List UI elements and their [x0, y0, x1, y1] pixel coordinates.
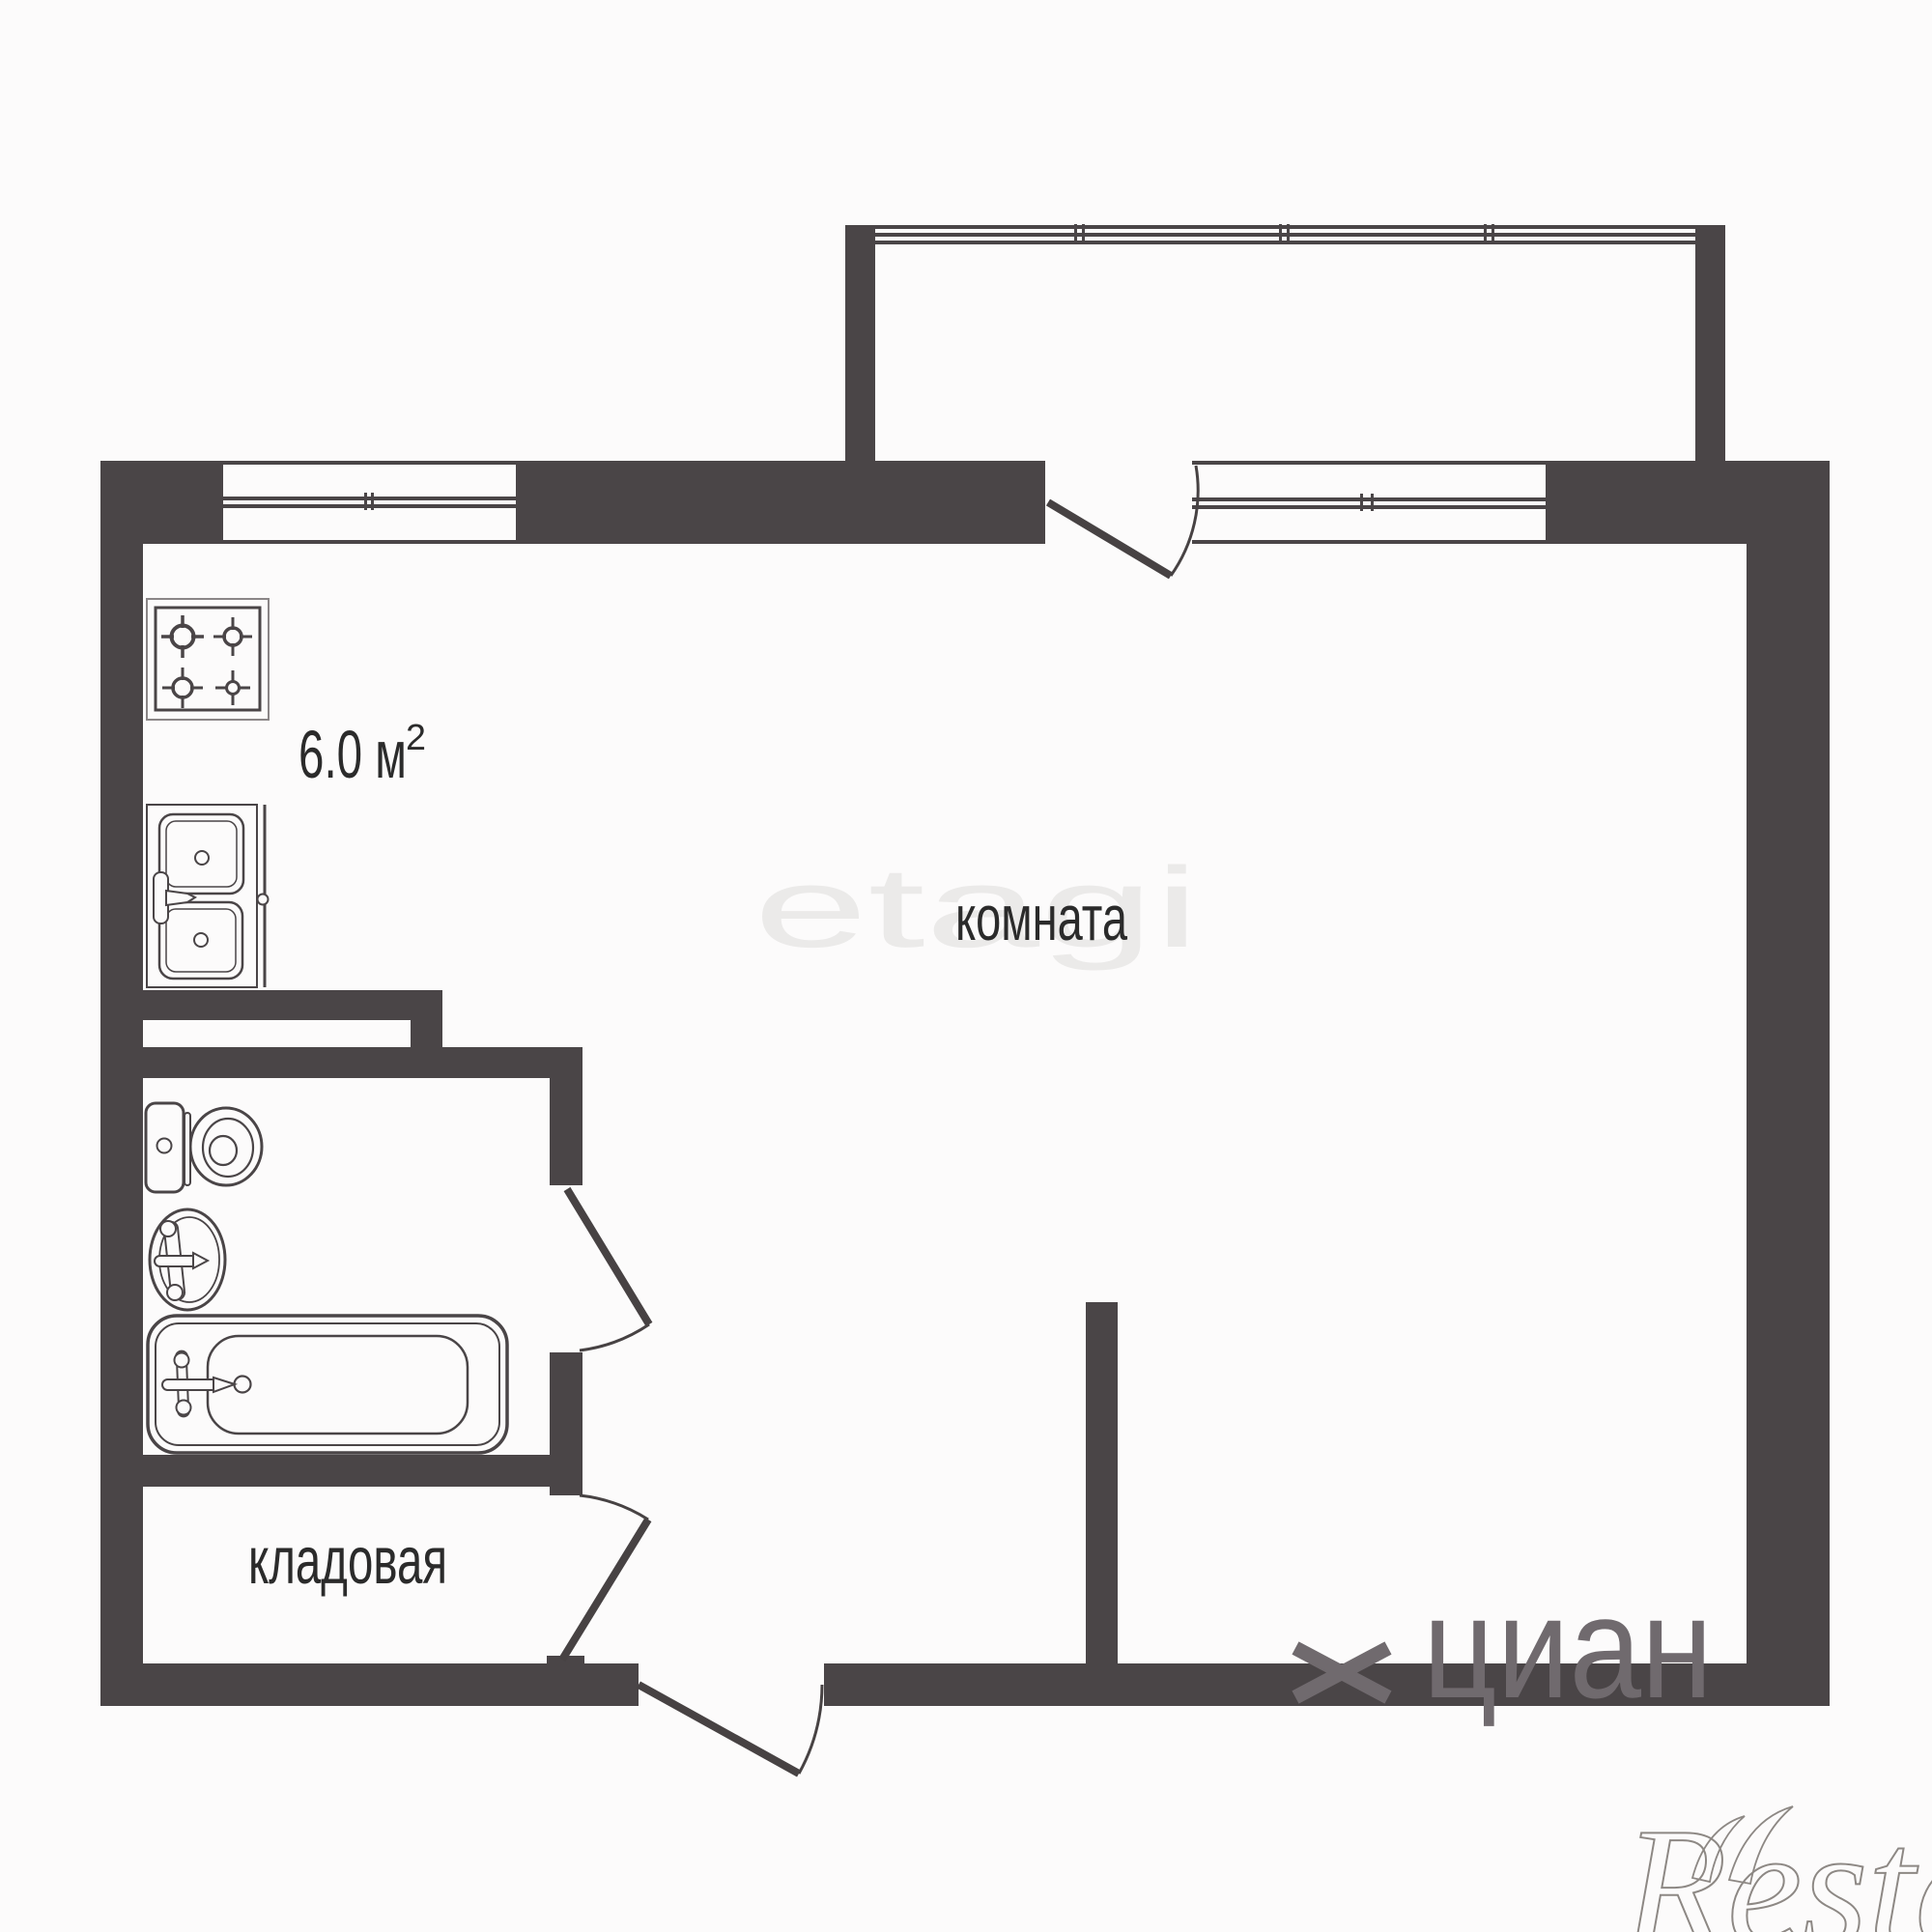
svg-text:кладовая: кладовая	[248, 1523, 447, 1598]
svg-text:6.0 м: 6.0 м	[298, 717, 407, 792]
svg-text:циан: циан	[1423, 1566, 1713, 1728]
svg-text:Restate: Restate	[1623, 1793, 1932, 1932]
svg-text:комната: комната	[955, 882, 1127, 953]
svg-text:2: 2	[406, 718, 426, 758]
